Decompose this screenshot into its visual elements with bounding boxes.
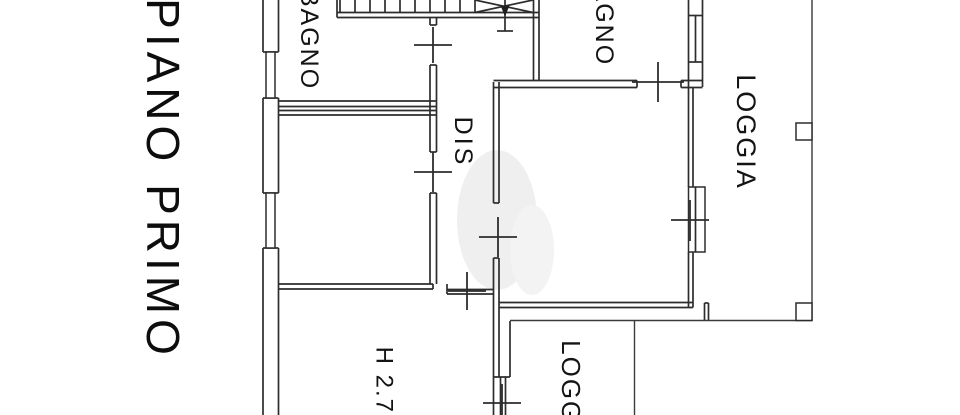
exterior-right-wall-top bbox=[689, 0, 703, 87]
wall-middle-bottom bbox=[279, 284, 494, 294]
watermark bbox=[457, 150, 554, 295]
wall-bigroom-bottom bbox=[499, 303, 693, 308]
window-mark-bottom bbox=[483, 384, 521, 415]
plan-labels: PIANO PRIMO BAGNO BAGNO DIS LOGGIA H 2.7… bbox=[137, 0, 761, 415]
wall-bagno1-bottom bbox=[279, 101, 437, 115]
door-mark-bagno2 bbox=[632, 62, 684, 102]
pillar bbox=[796, 123, 812, 140]
room-label-loggia-bottom: LOGGIA bbox=[556, 340, 586, 415]
label-ceiling-height: H 2.70 bbox=[371, 347, 398, 415]
left-wall-windows bbox=[266, 52, 275, 248]
room-label-dis: DIS bbox=[449, 117, 477, 168]
room-label-bagno-right: BAGNO bbox=[590, 0, 618, 66]
page-title: PIANO PRIMO bbox=[137, 0, 189, 360]
room-label-bagno-left: BAGNO bbox=[295, 0, 323, 90]
door-mark-middle-room bbox=[414, 152, 452, 192]
stairs bbox=[337, 0, 539, 31]
window bbox=[266, 193, 275, 248]
floor-plan: PIANO PRIMO BAGNO BAGNO DIS LOGGIA H 2.7… bbox=[0, 0, 960, 415]
window bbox=[266, 52, 275, 98]
plan-drawing: PIANO PRIMO BAGNO BAGNO DIS LOGGIA H 2.7… bbox=[0, 0, 960, 415]
wall-bigroom-right bbox=[689, 87, 706, 308]
wall-stub-loggia-corner bbox=[705, 303, 709, 321]
loggia-outline bbox=[510, 0, 812, 415]
pillar bbox=[796, 303, 812, 321]
stair-treads bbox=[340, 0, 475, 13]
door-mark-bagno1 bbox=[414, 27, 452, 63]
room-label-loggia-right: LOGGIA bbox=[731, 74, 761, 190]
